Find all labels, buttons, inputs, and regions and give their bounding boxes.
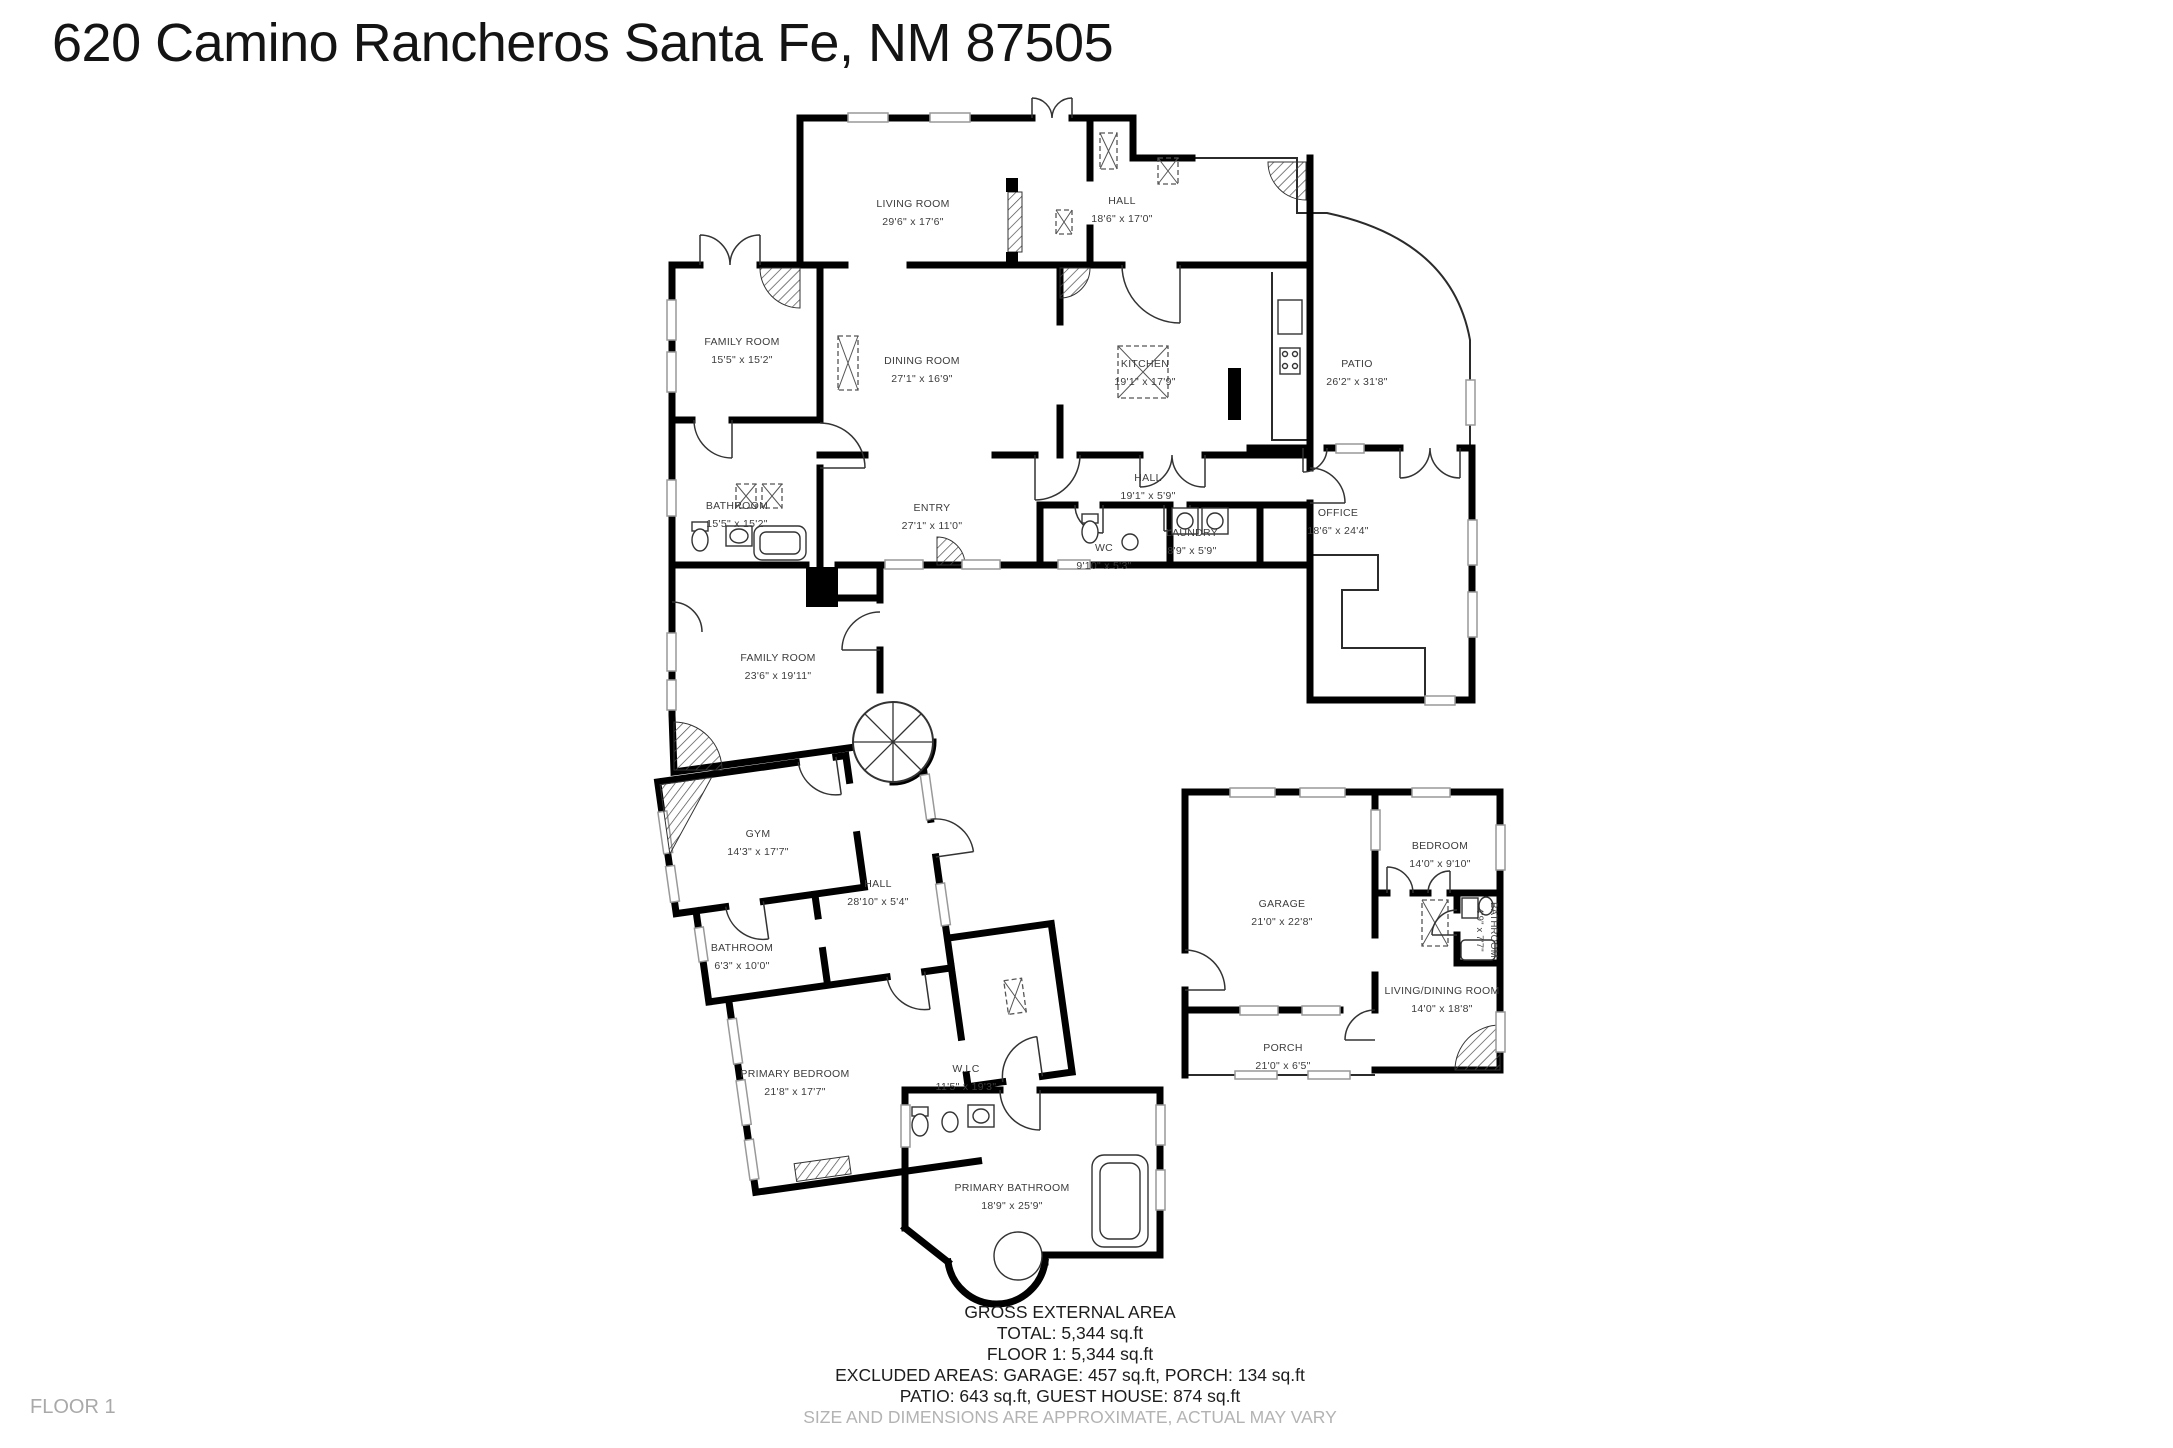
fan-family-room-1 xyxy=(760,268,800,308)
room-label-gym: GYM xyxy=(746,828,771,840)
room-dims-patio: 26'2" x 31'8" xyxy=(1326,376,1388,388)
room-dims-wic: 11'5" x 19'3" xyxy=(936,1081,997,1093)
summary-excluded2: PATIO: 643 sq.ft, GUEST HOUSE: 874 sq.ft xyxy=(470,1386,1670,1407)
fan-hall-top xyxy=(1268,162,1306,200)
skylight-box-wic xyxy=(1004,978,1027,1014)
fan-guest-living xyxy=(1455,1025,1500,1070)
floor-plan-svg: LIVING ROOM 29'6" x 17'6" HALL 18'6" x 1… xyxy=(0,0,2173,1448)
room-label-hall-mid: HALL xyxy=(1134,472,1161,484)
room-dims-office: 18'6" x 24'4" xyxy=(1307,525,1369,537)
fireplace-jamb-bottom xyxy=(1006,252,1018,266)
room-label-hall-top: HALL xyxy=(1108,195,1135,207)
round-tub-primary xyxy=(994,1232,1042,1280)
summary-excluded1: EXCLUDED AREAS: GARAGE: 457 sq.ft, PORCH… xyxy=(470,1365,1670,1386)
room-dims-entry: 27'1" x 11'0" xyxy=(902,520,963,532)
room-label-wc: WC xyxy=(1095,542,1113,554)
room-dims-family-room-1: 15'5" x 15'2" xyxy=(711,354,773,366)
room-label-primary-bedroom: PRIMARY BEDROOM xyxy=(740,1068,849,1080)
room-dims-laundry: 8'9" x 5'9" xyxy=(1167,545,1216,557)
room-label-laundry: LAUNDRY xyxy=(1166,527,1218,539)
room-dims-bathroom-1: 15'5" x 15'2" xyxy=(706,518,768,530)
room-label-bathroom-2: BATHROOM xyxy=(711,942,773,954)
room-label-family-room-2: FAMILY ROOM xyxy=(740,652,815,664)
room-dims-living-dining: 14'0" x 18'8" xyxy=(1411,1003,1473,1015)
room-label-office: OFFICE xyxy=(1318,507,1358,519)
floor-plan-page: 620 Camino Rancheros Santa Fe, NM 87505 xyxy=(0,0,2173,1448)
summary-floor1: FLOOR 1: 5,344 sq.ft xyxy=(470,1344,1670,1365)
fan-family-room-2 xyxy=(674,722,722,770)
solid-wall-blocks xyxy=(806,178,1241,607)
fireplace-living-room xyxy=(1008,192,1022,252)
room-label-garage: GARAGE xyxy=(1259,898,1306,910)
room-dims-hall-top: 18'6" x 17'0" xyxy=(1091,213,1153,225)
room-dims-bedroom-guest: 14'0" x 9'10" xyxy=(1409,858,1471,870)
fan-entry xyxy=(937,537,965,565)
room-dims-kitchen: 19'1" x 17'9" xyxy=(1114,376,1176,388)
floor-label: FLOOR 1 xyxy=(30,1396,116,1419)
toilet-bathroom1 xyxy=(692,529,708,551)
stair-hatch-wing xyxy=(660,777,721,854)
bidet-primary xyxy=(942,1112,958,1132)
room-label-living-room: LIVING ROOM xyxy=(876,198,949,210)
walls-guest-house xyxy=(1185,792,1500,1075)
room-dims-dining-room: 27'1" x 16'9" xyxy=(891,373,953,385)
fireplace-jamb-top xyxy=(1006,178,1018,192)
room-dims-primary-bathroom: 18'9" x 25'9" xyxy=(981,1200,1043,1212)
office-stair-outline xyxy=(1310,555,1425,697)
room-label-kitchen: KITCHEN xyxy=(1121,358,1169,370)
room-label-wic: W.I.C xyxy=(952,1063,979,1075)
windows-guest-house xyxy=(1230,788,1505,1079)
room-dims-bathroom-guest: 4'9" x 7'7" xyxy=(1474,908,1485,952)
room-dims-garage: 21'0" x 22'8" xyxy=(1251,916,1313,928)
room-label-bedroom-guest: BEDROOM xyxy=(1412,840,1468,852)
entry-step-block xyxy=(806,567,838,607)
room-dims-primary-bedroom: 21'8" x 17'7" xyxy=(764,1086,826,1098)
doors-wing xyxy=(707,735,1042,1117)
sink-wc xyxy=(1122,534,1138,550)
sink-bathroom1 xyxy=(730,529,748,543)
kitchen-peninsula-block xyxy=(1228,368,1241,420)
room-label-family-room-1: FAMILY ROOM xyxy=(704,336,779,348)
room-label-patio: PATIO xyxy=(1341,358,1372,370)
room-dims-bathroom-2: 6'3" x 10'0" xyxy=(714,960,769,972)
room-label-bathroom-1: BATHROOM xyxy=(706,500,768,512)
room-label-hall-wing: HALL xyxy=(864,878,891,890)
fan-dining xyxy=(1060,268,1090,298)
summary-total: TOTAL: 5,344 sq.ft xyxy=(470,1323,1670,1344)
room-dims-wc: 9'10" x 5'3" xyxy=(1076,560,1131,572)
room-dims-family-room-2: 23'6" x 19'11" xyxy=(745,670,812,682)
spiral-staircase xyxy=(853,702,933,782)
toilet-primary xyxy=(912,1114,928,1136)
room-dims-hall-mid: 19'1" x 5'9" xyxy=(1120,490,1175,502)
room-label-dining-room: DINING ROOM xyxy=(884,355,960,367)
room-label-porch: PORCH xyxy=(1263,1042,1302,1054)
room-label-entry: ENTRY xyxy=(914,502,951,514)
area-summary: GROSS EXTERNAL AREA TOTAL: 5,344 sq.ft F… xyxy=(470,1302,1670,1428)
summary-heading: GROSS EXTERNAL AREA xyxy=(470,1302,1670,1323)
room-dims-living-room: 29'6" x 17'6" xyxy=(882,216,944,228)
room-label-living-dining: LIVING/DINING ROOM xyxy=(1384,985,1499,997)
room-dims-hall-wing: 28'10" x 5'4" xyxy=(847,896,909,908)
summary-disclaimer: SIZE AND DIMENSIONS ARE APPROXIMATE, ACT… xyxy=(470,1407,1670,1428)
room-dims-gym: 14'3" x 17'7" xyxy=(727,846,789,858)
toilet-wc xyxy=(1082,521,1098,543)
kitchen-fridge xyxy=(1278,300,1302,334)
room-label-bathroom-guest: BATHROOM xyxy=(1488,902,1499,958)
room-dims-porch: 21'0" x 6'5" xyxy=(1255,1060,1310,1072)
room-label-primary-bathroom: PRIMARY BATHROOM xyxy=(954,1182,1069,1194)
